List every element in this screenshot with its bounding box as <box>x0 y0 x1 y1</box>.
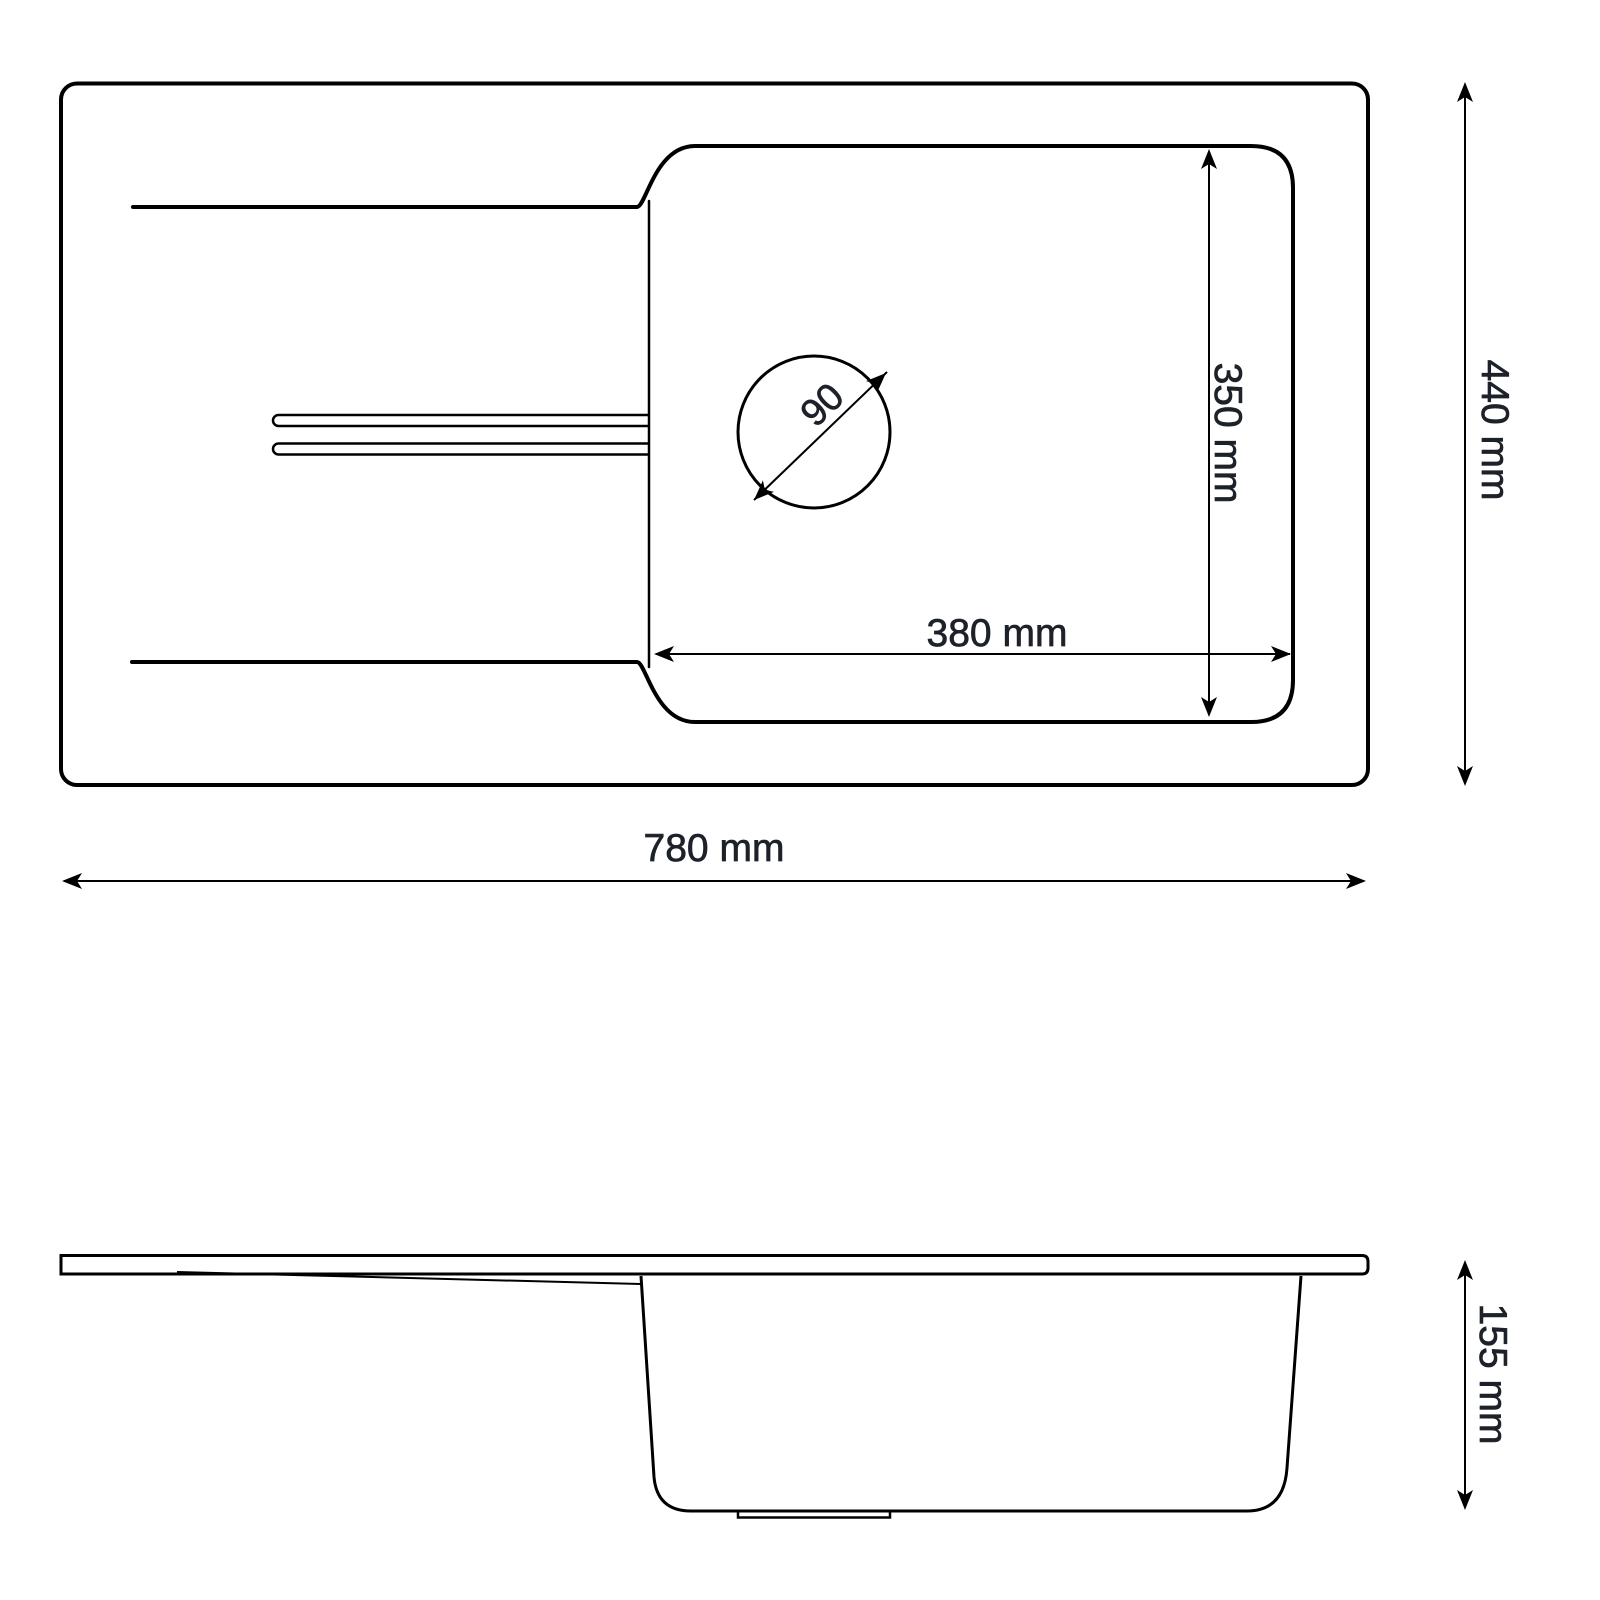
svg-text:440 mm: 440 mm <box>1473 360 1516 501</box>
svg-text:155 mm: 155 mm <box>1471 1304 1514 1445</box>
svg-text:350 mm: 350 mm <box>1206 363 1249 504</box>
svg-text:780 mm: 780 mm <box>644 827 785 870</box>
svg-text:380 mm: 380 mm <box>927 612 1068 655</box>
